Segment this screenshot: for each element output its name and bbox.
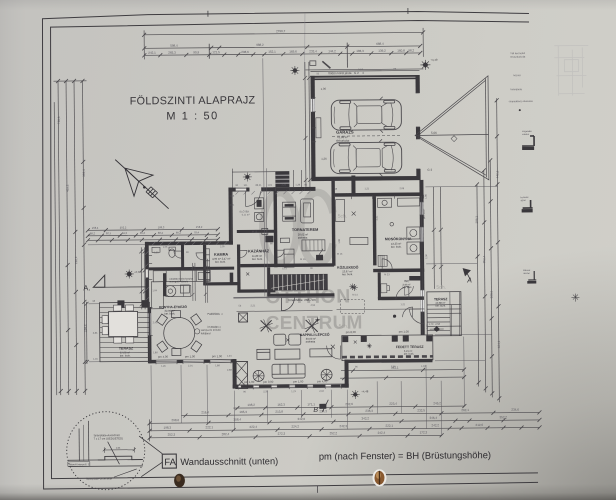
svg-text:ker. burk.: ker. burk. xyxy=(402,286,412,289)
svg-text:5,06: 5,06 xyxy=(431,131,437,135)
svg-text:223,4: 223,4 xyxy=(389,402,397,406)
svg-text:442,2: 442,2 xyxy=(495,170,499,178)
svg-text:2,56: 2,56 xyxy=(391,365,396,368)
svg-text:84,3: 84,3 xyxy=(122,231,128,235)
svg-text:222,1: 222,1 xyxy=(386,424,394,428)
svg-text:222,4: 222,4 xyxy=(250,425,258,429)
svg-text:1,26: 1,26 xyxy=(321,157,327,161)
svg-text:+4,49: +4,49 xyxy=(430,58,438,62)
svg-text:MOSÓKONYHA: MOSÓKONYHA xyxy=(385,236,412,241)
svg-text:202,2: 202,2 xyxy=(120,226,127,230)
svg-text:1,04: 1,04 xyxy=(421,365,426,368)
svg-text:1,86: 1,86 xyxy=(338,238,341,243)
svg-text:TERASZ: TERASZ xyxy=(434,297,448,301)
svg-text:pm 8,00: pm 8,00 xyxy=(346,330,357,334)
svg-text:1,88: 1,88 xyxy=(153,351,158,354)
svg-text:parketta: parketta xyxy=(306,339,316,343)
svg-text:5dh.: 5dh. xyxy=(436,285,446,291)
svg-text:parketta: parketta xyxy=(298,235,308,239)
svg-text:pm 4,00: pm 4,00 xyxy=(317,379,328,383)
svg-text:1,86: 1,86 xyxy=(230,195,235,198)
svg-text:365,4: 365,4 xyxy=(82,169,86,177)
svg-text:165,3: 165,3 xyxy=(239,410,247,414)
svg-text:3,86: 3,86 xyxy=(93,332,98,335)
svg-text:ker. burk.: ker. burk. xyxy=(404,353,415,356)
svg-text:242,1: 242,1 xyxy=(148,51,156,55)
svg-text:ker. burk.: ker. burk. xyxy=(120,353,131,357)
svg-text:5ch.: 5ch. xyxy=(338,214,348,220)
svg-text:233,4: 233,4 xyxy=(309,49,317,53)
svg-text:pm (nach Fenster) = BH (Brüstu: pm (nach Fenster) = BH (Brüstungshöhe) xyxy=(319,449,491,462)
svg-text:298,6: 298,6 xyxy=(241,50,249,54)
svg-text:988,2: 988,2 xyxy=(256,43,264,47)
svg-text:1,04: 1,04 xyxy=(93,358,98,361)
svg-text:KAMRA: KAMRA xyxy=(214,253,228,257)
svg-text:282,4: 282,4 xyxy=(222,432,230,436)
svg-text:222,1: 222,1 xyxy=(206,425,214,429)
svg-text:+4,48: +4,48 xyxy=(361,389,369,393)
svg-text:M 16: M 16 xyxy=(337,253,343,256)
svg-text:352,4: 352,4 xyxy=(482,256,486,264)
svg-text:158,2: 158,2 xyxy=(196,225,203,229)
svg-text:216,4: 216,4 xyxy=(201,410,209,414)
svg-text:1,04: 1,04 xyxy=(152,289,157,292)
svg-text:342,2: 342,2 xyxy=(361,416,369,420)
svg-text:ker. burk.: ker. burk. xyxy=(215,260,226,264)
svg-text:162,3: 162,3 xyxy=(277,403,285,407)
svg-text:1,88: 1,88 xyxy=(215,364,220,367)
svg-text:földön körül járda G 2 4: földön körül járda G 2 4 xyxy=(328,71,364,75)
svg-text:1,41: 1,41 xyxy=(426,324,429,329)
svg-text:A: A xyxy=(466,277,472,284)
svg-text:4,56: 4,56 xyxy=(310,304,315,307)
svg-text:ker. burk.: ker. burk. xyxy=(165,311,176,315)
svg-text:88,21: 88,21 xyxy=(255,184,262,187)
svg-text:2,04: 2,04 xyxy=(319,390,324,393)
svg-text:Innenhöhe 268,7cm: Innenhöhe 268,7cm xyxy=(288,298,316,302)
svg-text:2790,7: 2790,7 xyxy=(276,29,286,33)
svg-text:burkolat: burkolat xyxy=(521,196,529,199)
svg-text:lábazat: lábazat xyxy=(523,269,530,272)
svg-text:pm 0,00: pm 0,00 xyxy=(263,380,274,384)
svg-text:Wand-Unterputz 2: Wand-Unterputz 2 xyxy=(69,463,90,466)
svg-text:2,21: 2,21 xyxy=(282,267,287,270)
svg-text:168,4: 168,4 xyxy=(92,226,99,230)
svg-text:FEDETT TERASZ: FEDETT TERASZ xyxy=(396,345,424,349)
svg-text:78,4: 78,4 xyxy=(194,230,200,234)
svg-text:272,3: 272,3 xyxy=(278,432,286,436)
svg-text:pm 4,00: pm 4,00 xyxy=(158,355,169,359)
svg-text:+0,04: +0,04 xyxy=(134,270,141,274)
svg-text:90,9: 90,9 xyxy=(193,50,199,54)
svg-text:pm 1,00: pm 1,00 xyxy=(212,354,223,358)
svg-text:7 x 17 cm (GEDGETED): 7 x 17 cm (GEDGETED) xyxy=(94,436,123,440)
svg-text:aljzat: aljzat xyxy=(521,199,527,202)
svg-text:betonjárda: betonjárda xyxy=(511,88,523,91)
svg-text:KÖZLEKEDŐ: KÖZLEKEDŐ xyxy=(337,264,359,269)
svg-text:452,2: 452,2 xyxy=(65,184,69,192)
svg-text:252,3: 252,3 xyxy=(168,433,176,437)
svg-text:101: 101 xyxy=(205,241,210,244)
svg-text:ker. burk.: ker. burk. xyxy=(391,245,402,249)
svg-text:2,26: 2,26 xyxy=(263,390,268,393)
svg-text:1,26: 1,26 xyxy=(161,365,166,368)
svg-text:298,2: 298,2 xyxy=(475,216,479,224)
svg-text:242,2: 242,2 xyxy=(432,423,440,427)
svg-text:teraszburkolat: teraszburkolat xyxy=(510,56,525,59)
svg-text:424,1: 424,1 xyxy=(497,340,501,348)
svg-text:92,1: 92,1 xyxy=(106,231,112,235)
svg-text:pm 1,00: pm 1,00 xyxy=(185,354,196,358)
svg-text:1,04: 1,04 xyxy=(116,447,121,450)
svg-text:90,2: 90,2 xyxy=(176,231,182,235)
svg-text:186,3: 186,3 xyxy=(158,225,165,229)
svg-text:2,04: 2,04 xyxy=(425,254,428,259)
svg-text:238,3: 238,3 xyxy=(365,409,373,413)
svg-text:2,08: 2,08 xyxy=(399,187,404,190)
svg-text:TORNATEREM: TORNATEREM xyxy=(292,228,318,232)
svg-text:171,1: 171,1 xyxy=(307,402,315,406)
svg-text:M 1 : 50: M 1 : 50 xyxy=(166,110,219,122)
svg-text:M 13: M 13 xyxy=(252,230,258,233)
svg-text:KONYHA-ÉTKEZŐ: KONYHA-ÉTKEZŐ xyxy=(159,304,187,309)
svg-text:1,26: 1,26 xyxy=(154,251,159,254)
svg-text:1,86: 1,86 xyxy=(425,194,428,199)
svg-text:598,4: 598,4 xyxy=(170,44,178,48)
svg-text:262,1: 262,1 xyxy=(461,408,469,412)
svg-text:Padlófűtés □: Padlófűtés □ xyxy=(208,312,224,316)
svg-text:213,8: 213,8 xyxy=(275,410,283,414)
svg-text:2,21: 2,21 xyxy=(376,215,379,220)
svg-text:B: B xyxy=(313,407,318,414)
svg-text:pm 1,00: pm 1,00 xyxy=(293,379,304,383)
svg-text:2,01: 2,01 xyxy=(163,246,168,249)
svg-text:vakolat: vakolat xyxy=(522,133,529,136)
svg-text:csapadékvíz elvezetés: csapadékvíz elvezetés xyxy=(509,100,534,103)
svg-text:738,6: 738,6 xyxy=(57,116,61,124)
svg-text:2,26: 2,26 xyxy=(220,245,225,248)
svg-text:Wandausschnitt (unten): Wandausschnitt (unten) xyxy=(180,456,278,467)
svg-text:1,21: 1,21 xyxy=(291,390,296,393)
svg-text:részlet: részlet xyxy=(523,272,530,275)
svg-text:242,3: 242,3 xyxy=(340,424,348,428)
svg-text:346,4: 346,4 xyxy=(429,416,437,420)
svg-text:242,4: 242,4 xyxy=(378,431,386,435)
svg-text:144,2: 144,2 xyxy=(328,49,336,53)
svg-text:ker. burk.: ker. burk. xyxy=(342,272,353,276)
svg-text:298,6: 298,6 xyxy=(171,418,179,422)
svg-text:1,21: 1,21 xyxy=(364,187,369,190)
svg-text:88,4: 88,4 xyxy=(158,231,164,235)
svg-text:186,3: 186,3 xyxy=(356,49,364,53)
svg-text:térburkolat: térburkolat xyxy=(336,139,349,143)
svg-text:88,2: 88,2 xyxy=(90,231,96,235)
svg-text:KAZÁNHÁZ: KAZÁNHÁZ xyxy=(248,248,270,253)
svg-text:ker. burk.: ker. burk. xyxy=(435,305,446,308)
svg-text:352,2: 352,2 xyxy=(499,415,507,419)
svg-text:TERASZ: TERASZ xyxy=(119,346,134,350)
svg-text:Spanplatte-Unterseite: Spanplatte-Unterseite xyxy=(86,476,113,480)
svg-text:169,6: 169,6 xyxy=(289,50,297,54)
svg-text:5,64: 5,64 xyxy=(358,68,363,71)
svg-text:1,00: 1,00 xyxy=(321,87,327,91)
svg-text:FÖLDSZINTI ALAPRAJZ: FÖLDSZINTI ALAPRAJZ xyxy=(130,94,256,107)
svg-text:szigetelés: szigetelés xyxy=(522,130,533,133)
svg-text:139,2: 139,2 xyxy=(378,49,386,53)
svg-text:pm 1,00: pm 1,00 xyxy=(244,380,255,384)
svg-text:121,5: 121,5 xyxy=(212,50,220,54)
svg-text:172,3: 172,3 xyxy=(420,430,428,434)
svg-text:6,11 m²: 6,11 m² xyxy=(242,213,250,216)
svg-text:198,3: 198,3 xyxy=(164,426,172,430)
svg-text:NAPPALI-LÉPCSŐ: NAPPALI-LÉPCSŐ xyxy=(300,332,330,337)
svg-text:2,21: 2,21 xyxy=(250,304,255,307)
svg-text:224,2: 224,2 xyxy=(292,425,300,429)
svg-text:1,01: 1,01 xyxy=(267,184,272,187)
svg-text:212,6: 212,6 xyxy=(476,423,484,427)
svg-text:2,26: 2,26 xyxy=(281,184,286,187)
svg-text:265,3: 265,3 xyxy=(168,51,176,55)
svg-text:közmű: közmű xyxy=(513,74,521,77)
svg-text:101: 101 xyxy=(243,184,248,187)
svg-text:2,01: 2,01 xyxy=(188,364,193,367)
svg-text:FA: FA xyxy=(164,457,176,468)
svg-text:mosogató+tűzhely: mosogató+tűzhely xyxy=(169,280,189,283)
svg-text:160,8: 160,8 xyxy=(397,49,405,53)
svg-text:232,5: 232,5 xyxy=(417,408,425,412)
svg-text:2,01: 2,01 xyxy=(230,204,235,207)
svg-text:2,41: 2,41 xyxy=(153,321,158,324)
svg-text:1,70 2,58: 1,70 2,58 xyxy=(429,323,441,326)
svg-text:ker. burk.: ker. burk. xyxy=(252,257,263,261)
svg-text:felüljárat: felüljárat xyxy=(201,331,211,335)
svg-text:1,38: 1,38 xyxy=(295,183,300,186)
svg-text:pm 1,00: pm 1,00 xyxy=(399,330,410,334)
svg-text:1,21: 1,21 xyxy=(400,303,405,306)
svg-text:M 23: M 23 xyxy=(384,273,390,276)
svg-text:pm 1,00: pm 1,00 xyxy=(422,209,426,219)
svg-text:98,2: 98,2 xyxy=(408,48,414,52)
svg-text:202,6: 202,6 xyxy=(345,402,353,406)
svg-text:245,2: 245,2 xyxy=(433,401,441,405)
svg-text:2,88: 2,88 xyxy=(227,369,232,372)
svg-text:A.: A. xyxy=(83,283,90,292)
svg-text:252,2: 252,2 xyxy=(330,431,338,435)
svg-text:138,2: 138,2 xyxy=(247,403,255,407)
svg-text:152,1: 152,1 xyxy=(268,50,276,54)
svg-text:G 3: G 3 xyxy=(427,168,432,172)
svg-text:5ch.: 5ch. xyxy=(339,324,349,330)
svg-text:282,1: 282,1 xyxy=(74,256,78,264)
svg-text:im Boden □: im Boden □ xyxy=(208,325,222,329)
svg-text:328,6: 328,6 xyxy=(489,290,493,298)
svg-text:M 14: M 14 xyxy=(352,293,358,296)
svg-text:688,4: 688,4 xyxy=(376,42,384,46)
svg-text:96,2: 96,2 xyxy=(140,231,146,235)
svg-text:1,04: 1,04 xyxy=(227,355,232,358)
svg-text:M 15: M 15 xyxy=(300,258,306,261)
svg-text:234,6: 234,6 xyxy=(511,408,519,412)
